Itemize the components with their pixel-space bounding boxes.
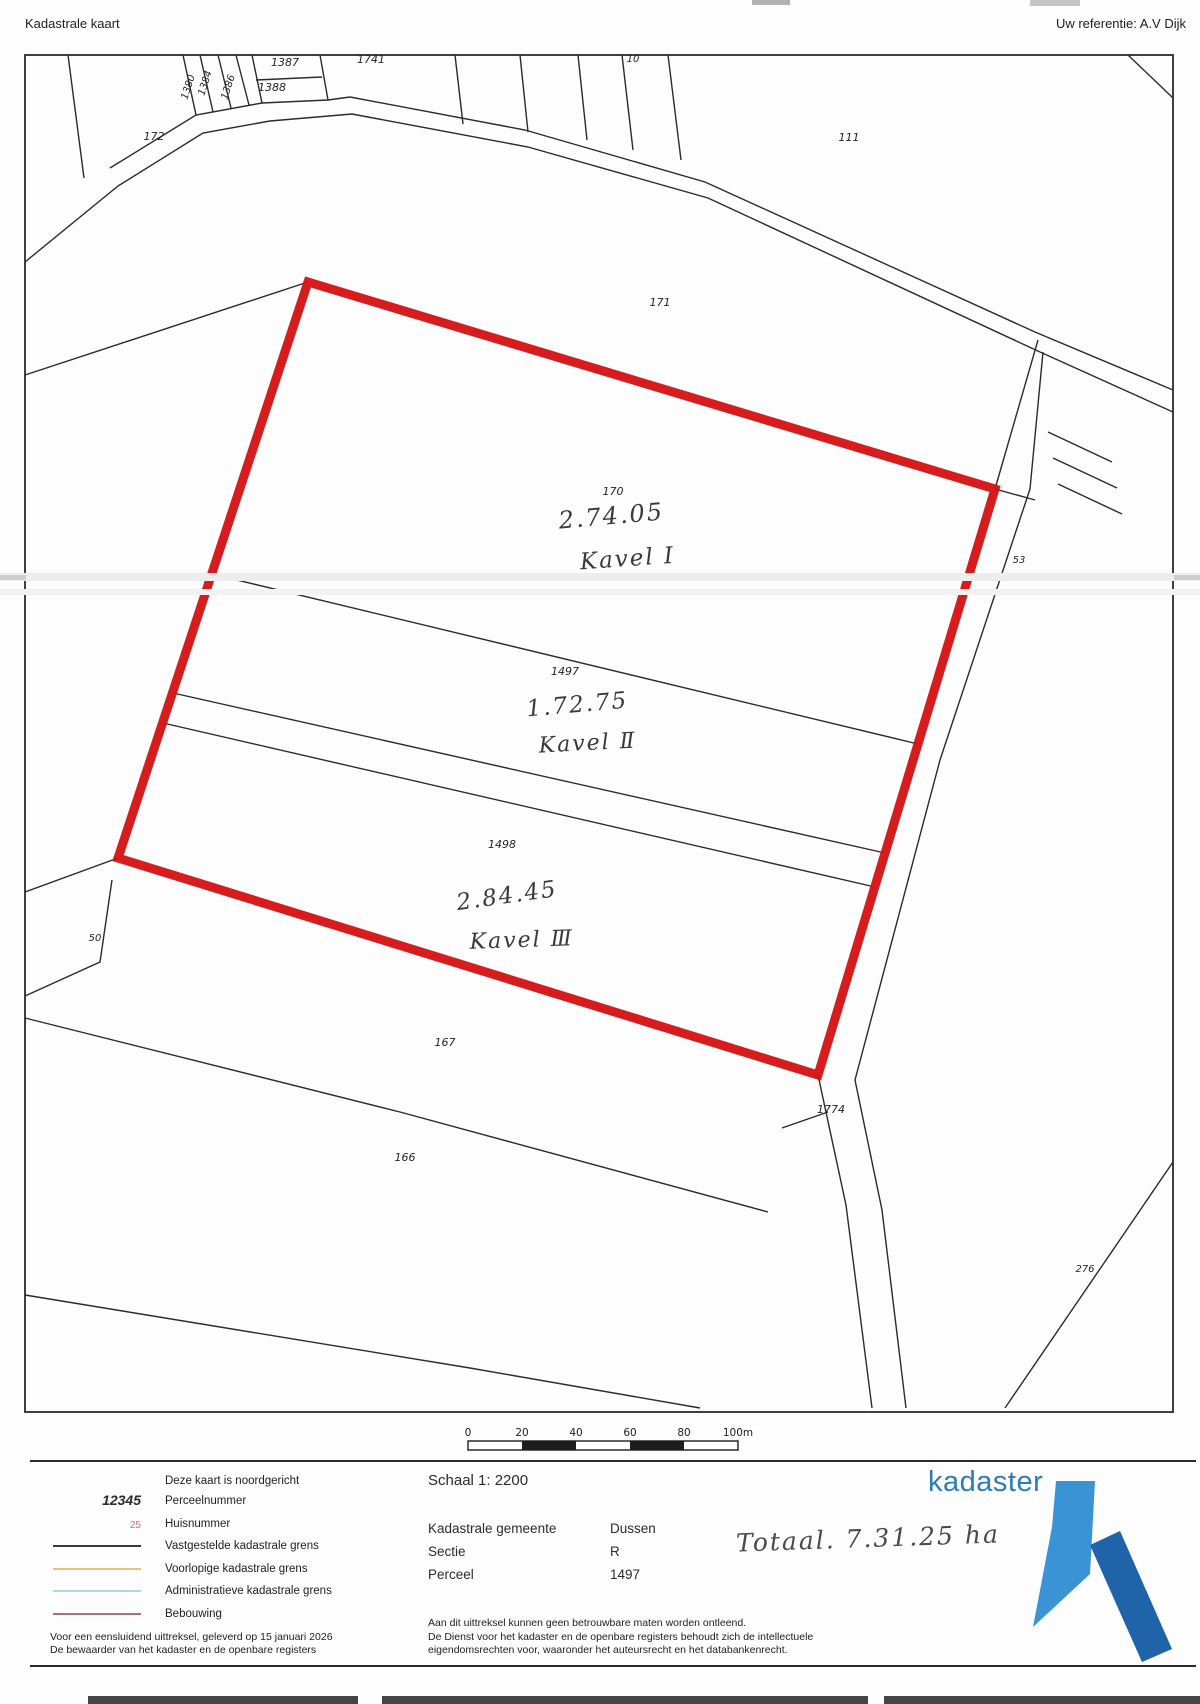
- parcel-label-171: 171: [650, 296, 671, 309]
- field-row: Sectie R: [428, 1544, 656, 1567]
- legend-label: Perceelnummer: [165, 1495, 246, 1507]
- footer-divider-bottom: [30, 1665, 1196, 1667]
- field-value: 1497: [610, 1567, 640, 1590]
- parcel-label-166: 166: [395, 1151, 416, 1164]
- certify-line-1: Voor een eensluidend uittreksel, gelever…: [50, 1631, 333, 1644]
- legend-row: Administratieve kadastrale grens: [50, 1580, 390, 1603]
- annotation: 2.84.45: [454, 876, 559, 916]
- disclaimer-line-1: Aan dit uittreksel kunnen geen betrouwba…: [428, 1617, 813, 1631]
- field-row: Perceel 1497: [428, 1567, 656, 1590]
- parcel-label-276: 276: [1075, 1264, 1094, 1275]
- scale-tick: 80: [677, 1427, 690, 1439]
- north-note: Deze kaart is noordgericht: [165, 1475, 299, 1487]
- parcel-label-50: 50: [89, 933, 102, 944]
- legend-label: Huisnummer: [165, 1518, 230, 1530]
- parcel-label-1384: 1384: [196, 69, 214, 97]
- parcel-label-53: 53: [1013, 555, 1026, 566]
- scale-tick: 60: [623, 1427, 636, 1439]
- kadaster-logo-icon: [1025, 1477, 1175, 1667]
- legend-row: Bebouwing: [50, 1603, 390, 1626]
- logo-dark-shape: [1090, 1531, 1172, 1662]
- scale-tick: 40: [569, 1427, 582, 1439]
- legend-sample: [50, 1582, 165, 1600]
- selected-parcel-outline: [118, 282, 995, 1075]
- legend-row: 12345Perceelnummer: [50, 1490, 390, 1513]
- annotation: Kavel Ⅲ: [468, 926, 574, 955]
- field-value: R: [610, 1544, 620, 1567]
- field-row: Kadastrale gemeente Dussen: [428, 1521, 656, 1544]
- parcel-label-172: 172: [144, 130, 165, 143]
- scan-artifact-band: [0, 589, 1200, 595]
- scale-text: Schaal 1: 2200: [428, 1472, 528, 1489]
- legend-label: Voorlopige kadastrale grens: [165, 1563, 308, 1575]
- legend-sample: [50, 1560, 165, 1578]
- parcel-label-167: 167: [435, 1036, 456, 1049]
- parcel-label-10: 10: [627, 54, 640, 65]
- scan-artifact-smudge: [752, 0, 790, 5]
- legend-sample: [50, 1605, 165, 1623]
- scan-artifact-smudge: [1030, 0, 1080, 6]
- annotation: 1.72.75: [526, 688, 630, 723]
- annotation: Kavel Ⅱ: [537, 728, 637, 758]
- scan-artifact-band: [0, 573, 1200, 581]
- legend-label: Vastgestelde kadastrale grens: [165, 1540, 319, 1552]
- annotation: Kavel Ⅰ: [578, 543, 676, 576]
- scan-artifact-bottom-edge: [358, 1696, 382, 1704]
- cadastral-extract-page: Kadastrale kaart Uw referentie: A.V Dijk…: [0, 0, 1200, 1704]
- certify-line-2: De bewaarder van het kadaster en de open…: [50, 1644, 333, 1657]
- field-label: Kadastrale gemeente: [428, 1521, 610, 1544]
- cadastral-map: 1380138413861387138817411017211117117014…: [0, 0, 1200, 1704]
- parcel-label-1386: 1386: [219, 73, 237, 101]
- parcel-label-1498: 1498: [488, 838, 516, 851]
- parcel-label-1388: 1388: [258, 81, 286, 94]
- disclaimer-line-3: eigendomsrechten voor, waaronder het aut…: [428, 1644, 813, 1658]
- parcel-label-1774: 1774: [817, 1103, 845, 1116]
- scale-bar: 020406080100m: [465, 1427, 753, 1450]
- field-label: Perceel: [428, 1567, 610, 1590]
- parcel-label-1497: 1497: [551, 665, 579, 678]
- parcel-label-1380: 1380: [179, 73, 197, 101]
- parcel-label-1741: 1741: [357, 53, 385, 66]
- parcel-label-1387: 1387: [271, 56, 299, 69]
- scan-artifact-bottom-edge: [88, 1696, 1200, 1704]
- scale-tick: 100m: [723, 1427, 753, 1439]
- legend-sample: [50, 1537, 165, 1555]
- parcel-label-111: 111: [839, 131, 860, 144]
- certification-note: Voor een eensluidend uittreksel, gelever…: [50, 1631, 333, 1657]
- legend-label: Administratieve kadastrale grens: [165, 1585, 332, 1597]
- field-label: Sectie: [428, 1544, 610, 1567]
- field-value: Dussen: [610, 1521, 656, 1544]
- legend: 12345Perceelnummer25HuisnummerVastgestel…: [50, 1490, 390, 1625]
- scale-tick: 0: [465, 1427, 472, 1439]
- disclaimer-line-2: De Dienst voor het kadaster en de openba…: [428, 1631, 813, 1645]
- parcel-fields: Kadastrale gemeente Dussen Sectie R Perc…: [428, 1521, 656, 1590]
- disclaimer: Aan dit uittreksel kunnen geen betrouwba…: [428, 1617, 813, 1658]
- footer-divider-top: [30, 1460, 1196, 1462]
- scan-artifact-band: [0, 575, 26, 580]
- handwritten-annotations: 2.74.05Kavel Ⅰ1.72.75Kavel Ⅱ2.84.45Kavel…: [454, 497, 676, 954]
- legend-row: 25Huisnummer: [50, 1513, 390, 1536]
- parcel-label-170: 170: [603, 485, 624, 498]
- scan-artifact-bottom-edge: [868, 1696, 884, 1704]
- scale-tick: 20: [515, 1427, 528, 1439]
- legend-sample: 12345: [50, 1492, 165, 1510]
- logo-light-shape: [1033, 1481, 1095, 1627]
- scan-artifact-band: [1174, 575, 1200, 580]
- legend-row: Vastgestelde kadastrale grens: [50, 1535, 390, 1558]
- legend-sample: 25: [50, 1515, 165, 1533]
- legend-label: Bebouwing: [165, 1608, 222, 1620]
- legend-row: Voorlopige kadastrale grens: [50, 1558, 390, 1581]
- annotation: 2.74.05: [556, 497, 665, 534]
